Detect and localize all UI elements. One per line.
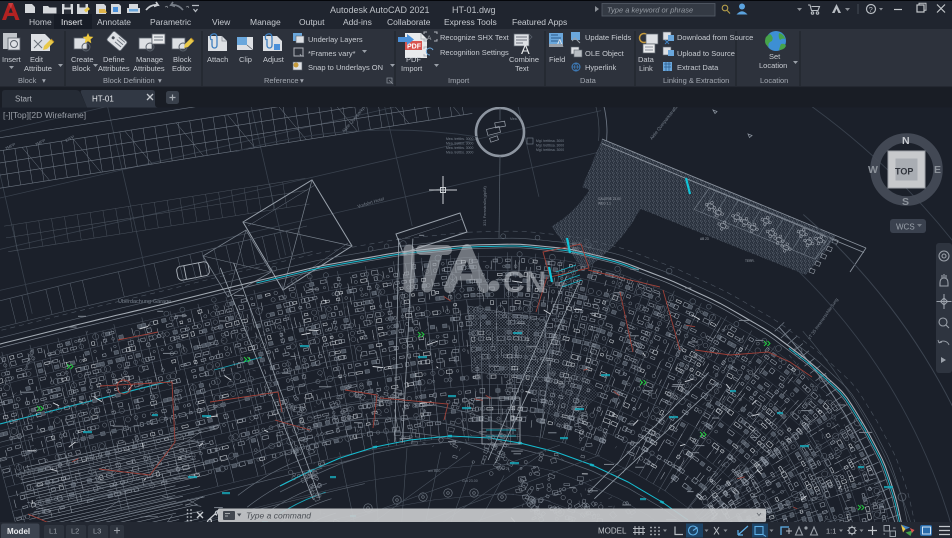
svg-text:Clip: Clip bbox=[239, 55, 252, 64]
svg-text:PDF: PDF bbox=[407, 44, 422, 51]
svg-text:CN: CN bbox=[503, 266, 546, 299]
svg-text:WEG 1.1: WEG 1.1 bbox=[598, 202, 611, 206]
svg-text:▾: ▾ bbox=[158, 76, 162, 85]
svg-text:Recognize SHX Text: Recognize SHX Text bbox=[440, 33, 510, 42]
svg-text:?: ? bbox=[869, 5, 873, 14]
svg-text:Mgl. trettbsa. 3000: Mgl. trettbsa. 3000 bbox=[536, 144, 564, 148]
svg-text:Model: Model bbox=[7, 527, 30, 536]
svg-text:L1: L1 bbox=[49, 527, 57, 536]
svg-text:OLE Object: OLE Object bbox=[585, 49, 625, 58]
svg-text:W: W bbox=[868, 164, 878, 176]
svg-text:Attribute: Attribute bbox=[24, 64, 52, 73]
svg-text:Annotate: Annotate bbox=[97, 17, 131, 27]
svg-text:Import: Import bbox=[401, 64, 423, 73]
svg-text:Home: Home bbox=[29, 17, 52, 27]
svg-text:TOP: TOP bbox=[895, 167, 913, 177]
svg-text:MODEL: MODEL bbox=[598, 527, 627, 536]
svg-text:Create: Create bbox=[71, 55, 94, 64]
svg-text:HT-01: HT-01 bbox=[92, 95, 114, 104]
svg-text:▾: ▾ bbox=[300, 76, 304, 85]
svg-text:Mgl. trettbsa. 3000: Mgl. trettbsa. 3000 bbox=[536, 148, 564, 152]
svg-text:Extract Data: Extract Data bbox=[677, 63, 719, 72]
svg-text:Import: Import bbox=[448, 76, 470, 85]
svg-text:WCS: WCS bbox=[896, 223, 915, 232]
svg-text:Attributes: Attributes bbox=[98, 64, 130, 73]
svg-text:Add-ins: Add-ins bbox=[343, 17, 372, 27]
svg-text:N: N bbox=[902, 135, 910, 147]
svg-text:Define: Define bbox=[103, 55, 125, 64]
svg-text:Upload to Source: Upload to Source bbox=[677, 49, 735, 58]
svg-text:GALERIE 23.00: GALERIE 23.00 bbox=[598, 197, 621, 201]
svg-text:Type a command: Type a command bbox=[246, 511, 311, 521]
svg-text:Output: Output bbox=[299, 17, 325, 27]
svg-text:am B50: am B50 bbox=[428, 469, 440, 473]
svg-text:PDF: PDF bbox=[406, 55, 421, 64]
svg-text:Adjust: Adjust bbox=[263, 55, 285, 64]
svg-text:Collaborate: Collaborate bbox=[387, 17, 431, 27]
svg-text:Block: Block bbox=[72, 64, 91, 73]
svg-text:Mea.: Mea. bbox=[510, 117, 518, 121]
svg-text:A: A bbox=[427, 35, 432, 42]
svg-text:Block: Block bbox=[173, 55, 192, 64]
svg-text:Location: Location bbox=[760, 76, 788, 85]
svg-text:Block Definition: Block Definition bbox=[103, 76, 155, 85]
svg-text:Insert: Insert bbox=[61, 17, 83, 27]
svg-text:Snap to Underlays ON: Snap to Underlays ON bbox=[308, 63, 383, 72]
svg-text:HT-01.dwg: HT-01.dwg bbox=[452, 5, 496, 15]
svg-text:Parametric: Parametric bbox=[150, 17, 192, 27]
svg-text:Recognition Settings: Recognition Settings bbox=[440, 48, 509, 57]
svg-text:Edit: Edit bbox=[30, 55, 44, 64]
svg-text:Underlay Layers: Underlay Layers bbox=[308, 35, 363, 44]
svg-text:Express Tools: Express Tools bbox=[444, 17, 497, 27]
svg-text:Mea. trettbs. 3000: Mea. trettbs. 3000 bbox=[446, 146, 473, 150]
svg-text:AB 23: AB 23 bbox=[700, 237, 709, 241]
svg-text:TERR.: TERR. bbox=[745, 259, 755, 263]
svg-text:Mgl. trettbsa. 3000: Mgl. trettbsa. 3000 bbox=[536, 139, 564, 143]
svg-text:Featured Apps: Featured Apps bbox=[512, 17, 567, 27]
svg-text:Manage: Manage bbox=[136, 55, 163, 64]
svg-text:Mea. trettbs. 3000: Mea. trettbs. 3000 bbox=[446, 137, 473, 141]
svg-text:Attach: Attach bbox=[207, 55, 228, 64]
svg-text:Autodesk AutoCAD 2021: Autodesk AutoCAD 2021 bbox=[330, 5, 430, 15]
svg-text:Block: Block bbox=[18, 76, 37, 85]
svg-text:Field: Field bbox=[549, 55, 565, 64]
svg-text:L3: L3 bbox=[93, 527, 101, 536]
svg-text:Data: Data bbox=[580, 76, 597, 85]
svg-text:Manage: Manage bbox=[250, 17, 281, 27]
svg-text:Update Fields: Update Fields bbox=[585, 33, 632, 42]
svg-text:321 Fernstraße(glp/M): 321 Fernstraße(glp/M) bbox=[482, 186, 487, 226]
svg-text:Mea. trettbs. 3000: Mea. trettbs. 3000 bbox=[446, 142, 473, 146]
svg-text:*Frames vary*: *Frames vary* bbox=[308, 49, 356, 58]
svg-text:Reference: Reference bbox=[264, 76, 299, 85]
svg-text:Gut 23.00: Gut 23.00 bbox=[462, 479, 478, 483]
svg-text:Set: Set bbox=[769, 52, 781, 61]
svg-text:Editor: Editor bbox=[172, 64, 192, 73]
svg-text:E: E bbox=[934, 164, 941, 176]
svg-text:View: View bbox=[212, 17, 231, 27]
svg-text:1:1: 1:1 bbox=[826, 527, 836, 536]
svg-text:Mea. trettbs. 3000: Mea. trettbs. 3000 bbox=[446, 151, 473, 155]
svg-text:Location: Location bbox=[759, 61, 787, 70]
svg-text:Hyperlink: Hyperlink bbox=[585, 63, 617, 72]
svg-text:Attributes: Attributes bbox=[133, 64, 165, 73]
svg-text:Combine: Combine bbox=[509, 55, 539, 64]
svg-text:[-][Top][2D Wireframe]: [-][Top][2D Wireframe] bbox=[3, 110, 86, 120]
svg-text:S: S bbox=[902, 196, 909, 208]
svg-text:Type a keyword or phrase: Type a keyword or phrase bbox=[607, 6, 693, 15]
svg-text:Link: Link bbox=[639, 64, 653, 73]
svg-text:Insert: Insert bbox=[2, 55, 22, 64]
svg-text:L2: L2 bbox=[71, 527, 79, 536]
svg-text:Text: Text bbox=[515, 64, 530, 73]
svg-text:Data: Data bbox=[638, 55, 655, 64]
svg-text:Linking & Extraction: Linking & Extraction bbox=[663, 76, 729, 85]
svg-text:Start: Start bbox=[15, 95, 33, 104]
svg-text:Download from Source: Download from Source bbox=[677, 33, 753, 42]
svg-text:▾: ▾ bbox=[42, 76, 46, 85]
